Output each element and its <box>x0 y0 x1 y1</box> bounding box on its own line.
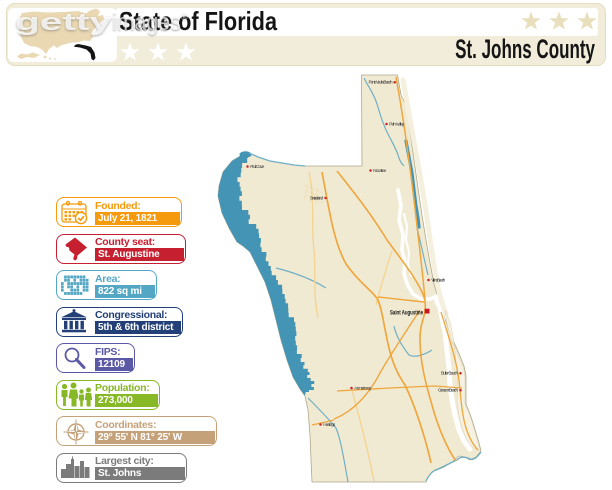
svg-text:Palm Valley: Palm Valley <box>389 122 405 127</box>
svg-text:Ponte Vedra Beach: Ponte Vedra Beach <box>369 80 393 85</box>
svg-text:Butler Beach: Butler Beach <box>441 371 458 376</box>
svg-text:Crescent Beach: Crescent Beach <box>438 388 458 393</box>
svg-text:Armstrong: Armstrong <box>354 386 371 391</box>
svg-text:Hastings: Hastings <box>323 422 336 427</box>
svg-text:Vilano Beach: Vilano Beach <box>431 278 445 283</box>
svg-text:Saint Augustine: Saint Augustine <box>390 310 423 317</box>
svg-text:Fruit Cove: Fruit Cove <box>250 164 264 169</box>
svg-text:Nocatee: Nocatee <box>373 168 386 173</box>
svg-text:Switzerland: Switzerland <box>310 196 323 201</box>
